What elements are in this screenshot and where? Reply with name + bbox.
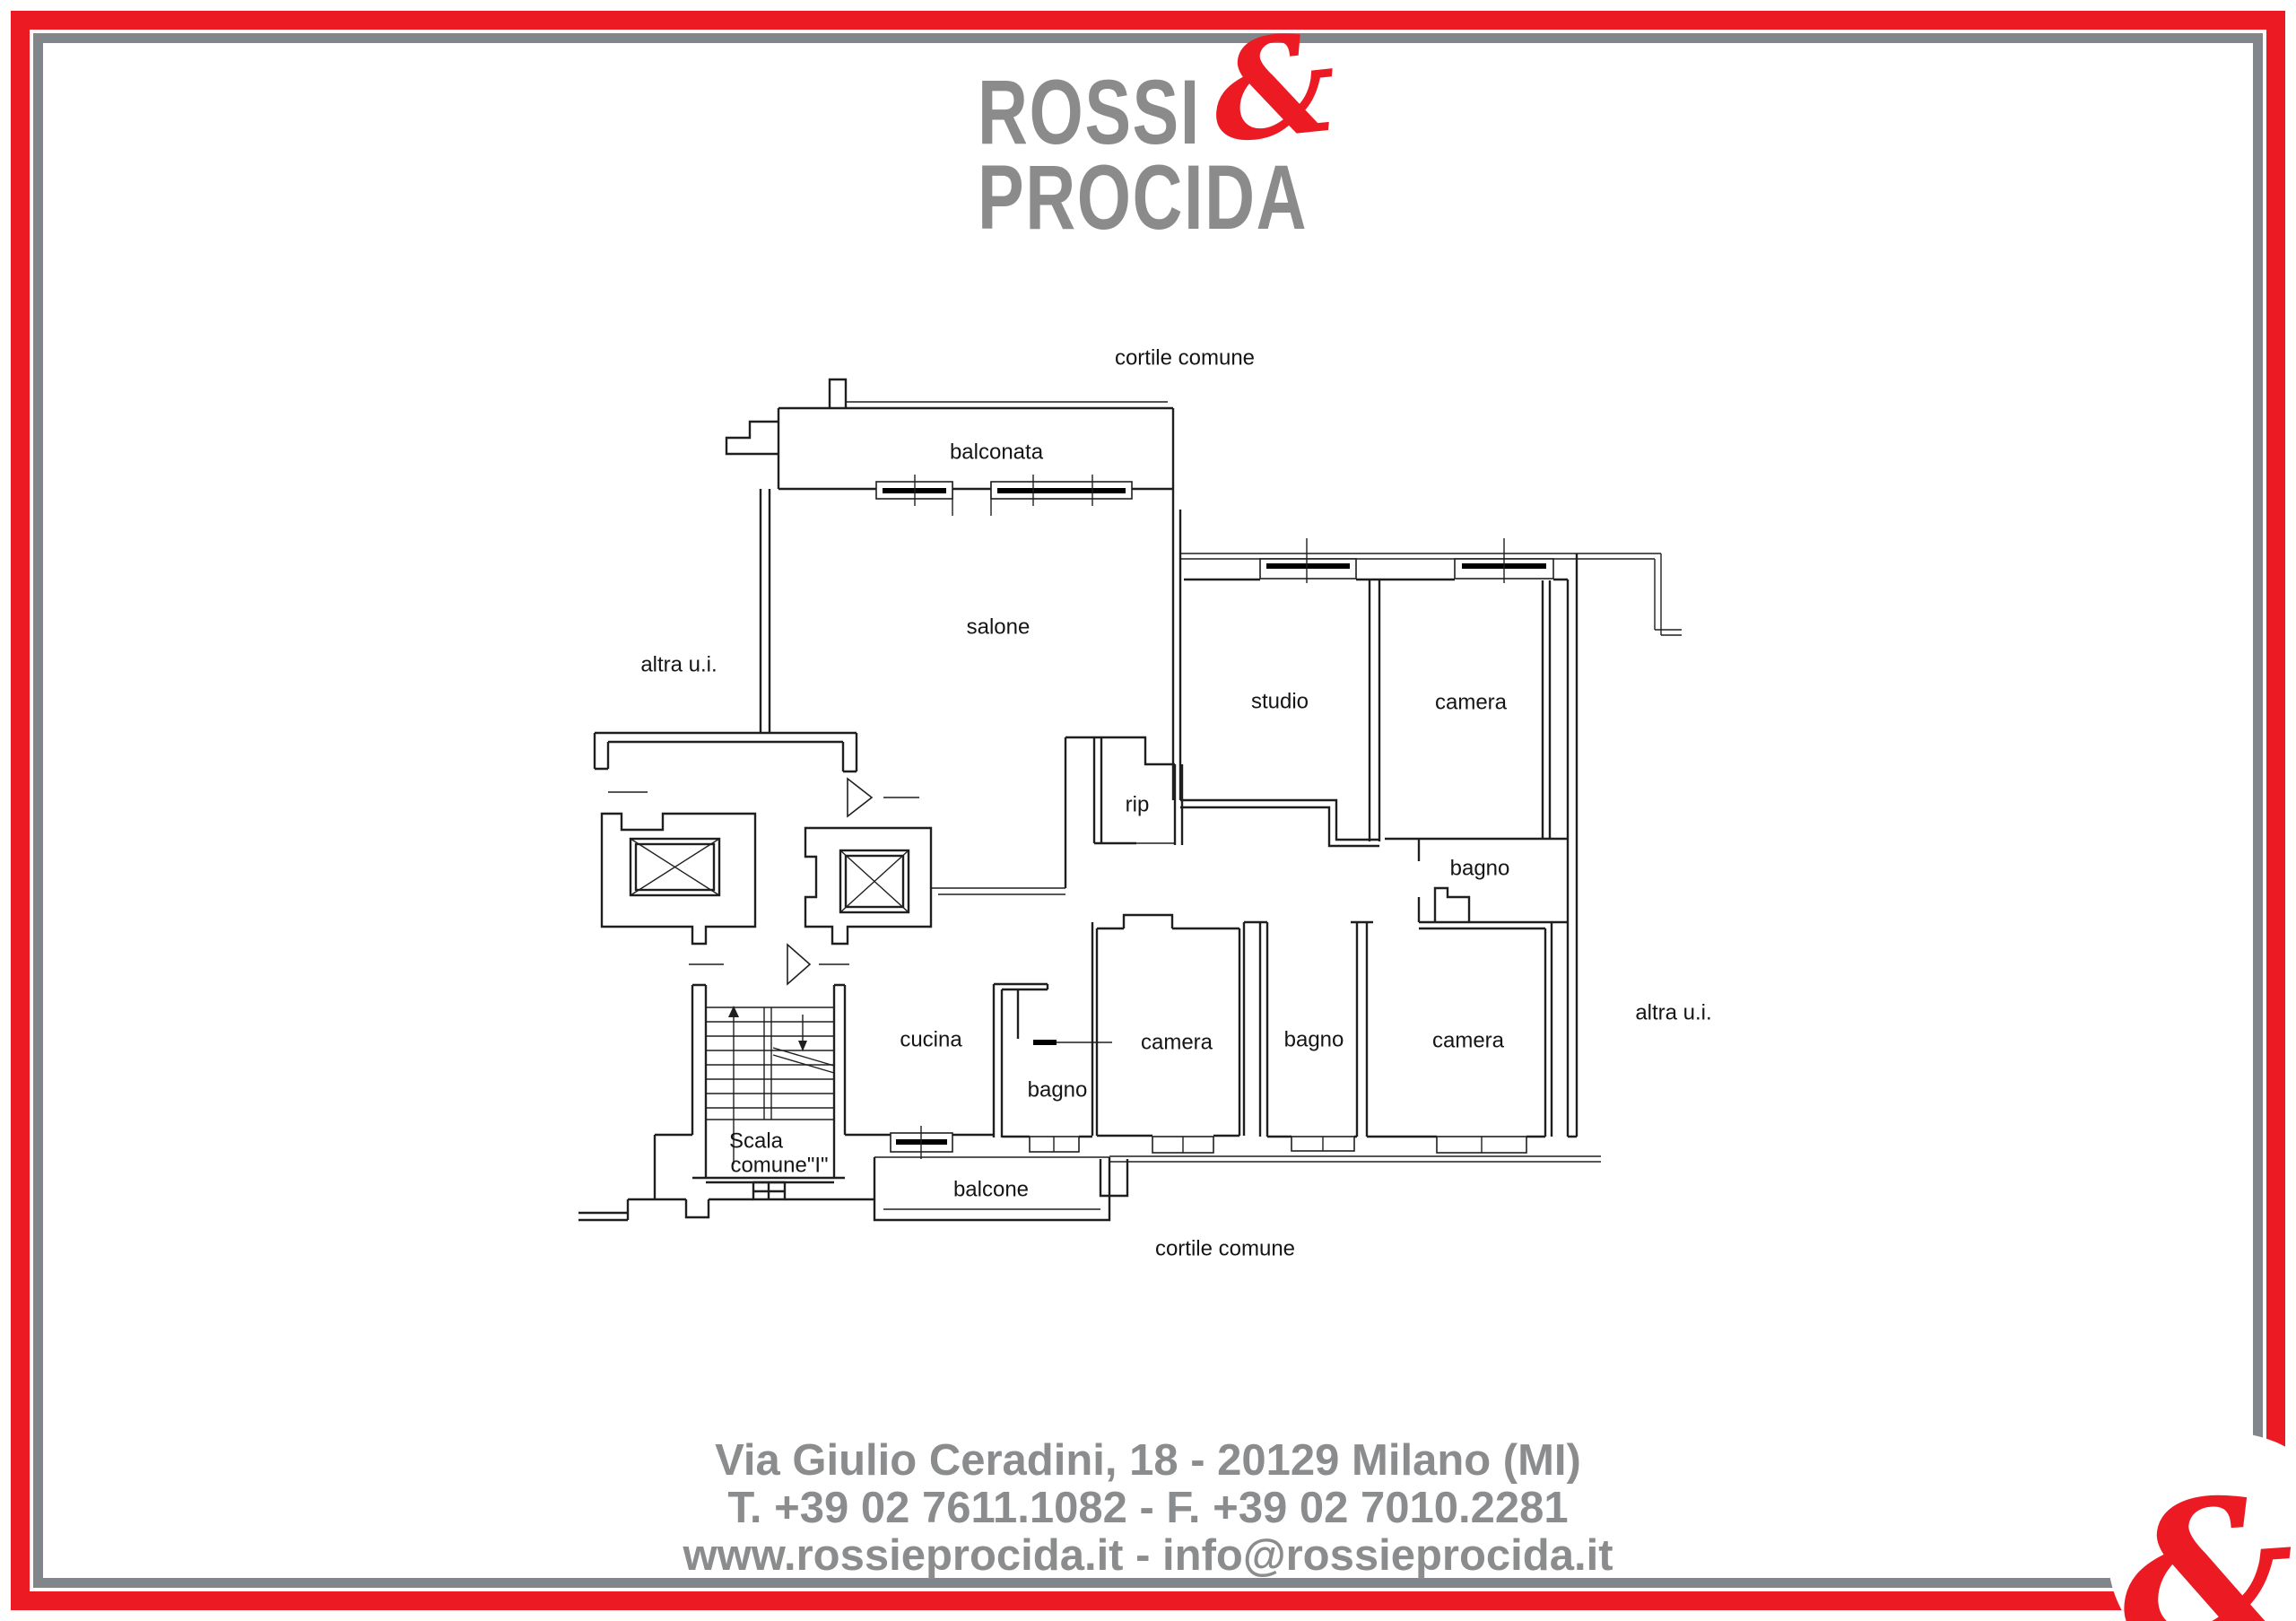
corner-ampersand-icon: &: [2114, 1468, 2296, 1621]
label-cucina: cucina: [900, 1027, 962, 1051]
label-bagno-top: bagno: [1450, 856, 1510, 880]
door-swing-icon: [787, 779, 872, 984]
label-balconata: balconata: [950, 440, 1044, 464]
label-scala-line2: comune"I": [730, 1153, 828, 1177]
label-altra-ui-right: altra u.i.: [1635, 1000, 1711, 1024]
footer-phones: T. +39 02 7611.1082 - F. +39 02 7010.228…: [0, 1485, 2296, 1532]
label-salone: salone: [967, 614, 1031, 639]
plan-windows: [876, 475, 1553, 1159]
footer-address: Via Giulio Ceradini, 18 - 20129 Milano (…: [0, 1437, 2296, 1485]
label-camera-right: camera: [1432, 1028, 1505, 1052]
label-bagno-small: bagno: [1028, 1077, 1088, 1102]
label-cortile-top: cortile comune: [1115, 345, 1255, 370]
elevator-icon: [602, 814, 931, 944]
label-studio: studio: [1251, 689, 1309, 713]
label-balcone: balcone: [953, 1177, 1029, 1201]
label-scala-line1: Scala: [729, 1129, 784, 1153]
contact-footer: Via Giulio Ceradini, 18 - 20129 Milano (…: [0, 1437, 2296, 1580]
label-rip: rip: [1126, 792, 1150, 816]
label-camera-top: camera: [1435, 690, 1508, 714]
label-camera-mid: camera: [1141, 1030, 1213, 1054]
label-bagno-mid: bagno: [1284, 1027, 1344, 1051]
flyer-page: ROSSI PROCIDA &: [0, 0, 2296, 1621]
floor-plan: cortile comune balconata salone altra u.…: [538, 332, 1812, 1292]
logo-ampersand-icon: &: [1205, 13, 1342, 162]
label-altra-ui-left: altra u.i.: [640, 652, 717, 676]
label-cortile-bottom: cortile comune: [1155, 1236, 1295, 1260]
footer-web: www.rossieprocida.it - info@rossieprocid…: [0, 1532, 2296, 1580]
